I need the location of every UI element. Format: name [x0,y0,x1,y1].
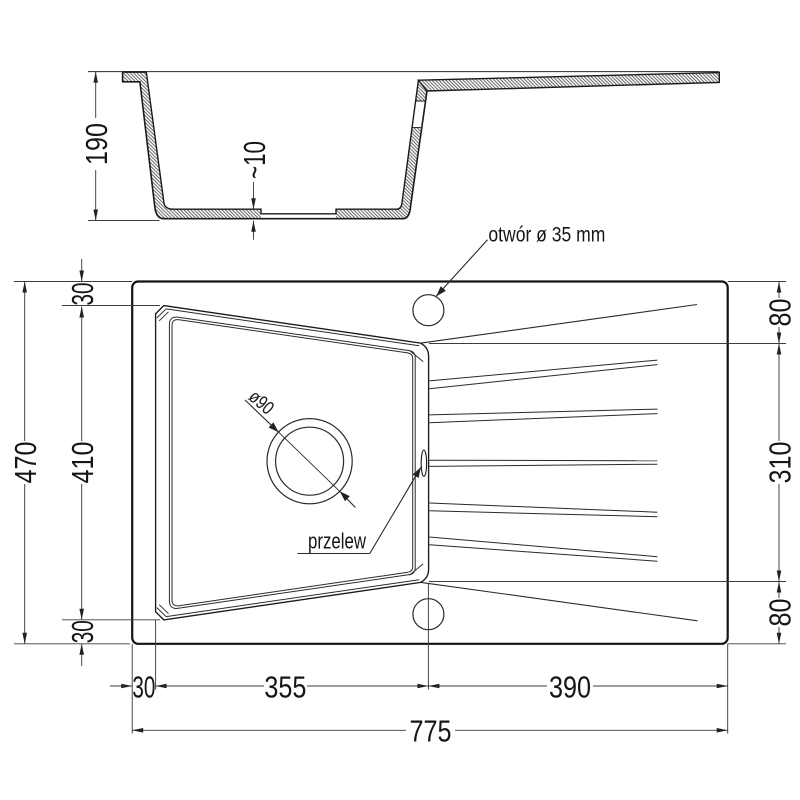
svg-text:30: 30 [65,620,100,643]
svg-text:80: 80 [762,599,797,627]
svg-text:410: 410 [65,442,100,484]
svg-text:355: 355 [264,669,306,704]
svg-text:190: 190 [79,123,114,165]
svg-text:80: 80 [762,299,797,327]
svg-text:otwór ø 35 mm: otwór ø 35 mm [488,224,605,247]
svg-text:775: 775 [410,714,452,749]
svg-text:~10: ~10 [237,141,272,179]
svg-text:przelew: przelew [308,528,366,553]
svg-text:470: 470 [8,442,43,484]
svg-text:310: 310 [762,442,797,484]
svg-text:30: 30 [65,283,100,306]
svg-text:390: 390 [549,669,591,704]
svg-text:30: 30 [132,669,155,704]
